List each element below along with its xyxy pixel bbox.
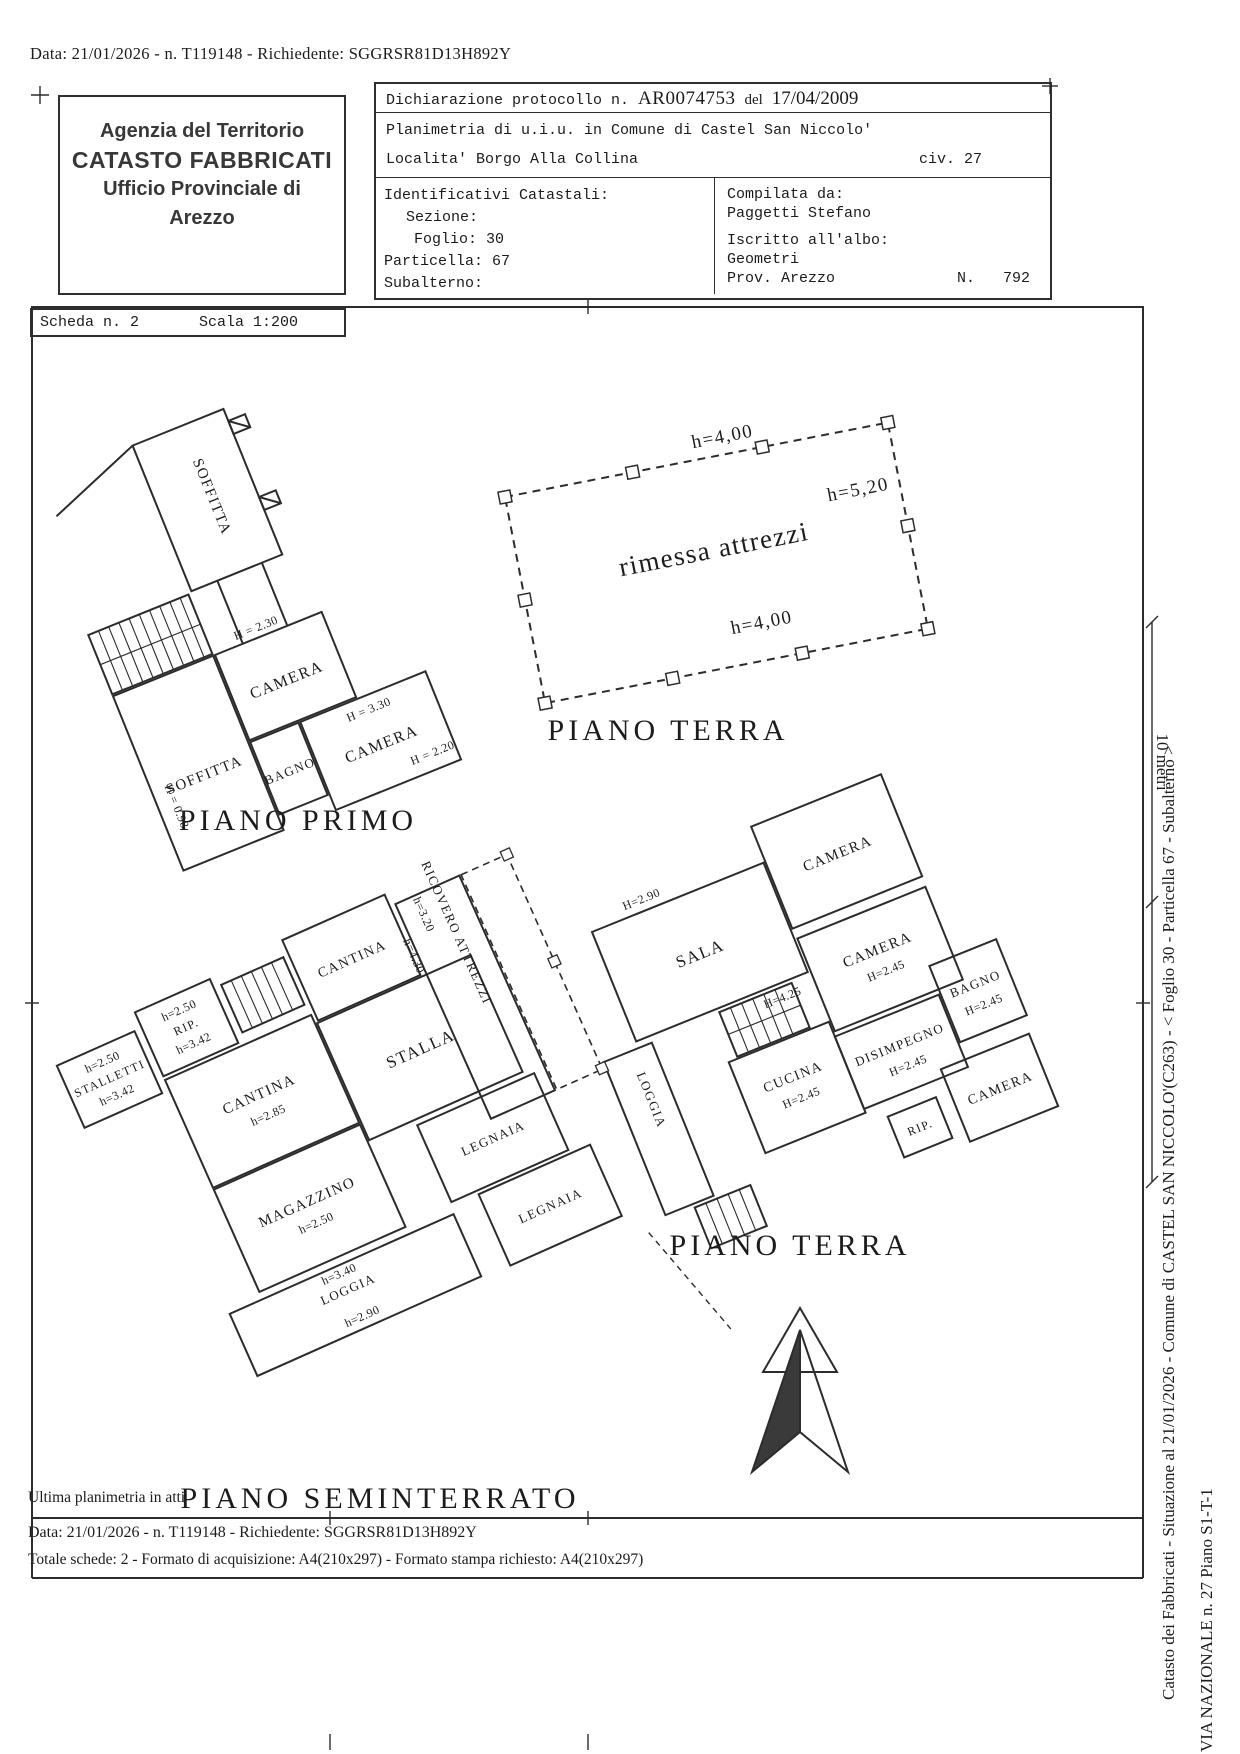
seminterrato-title: PIANO SEMINTERRATO (181, 1482, 580, 1515)
seminterrato-plan: h=2.50 STALLETTI h=3.42 h=2.50 RIP. h=3.… (42, 828, 665, 1401)
room-label-camera-top: CAMERA (801, 833, 875, 875)
room-loggia (604, 1043, 714, 1215)
room-label-camera1: CAMERA (248, 658, 326, 703)
stair-treads (641, 983, 872, 1244)
canopy-posts (500, 848, 608, 1075)
room-label-legnaia-1: LEGNAIA (459, 1117, 527, 1158)
room-label-legnaia-2: LEGNAIA (516, 1185, 584, 1226)
north-arrow (752, 1308, 848, 1472)
room-camera-mid (797, 887, 962, 1031)
height-label: h=4,00 (690, 421, 755, 454)
rimessa-attrezzi-plan: rimessa attrezzi h=4,00 h=5,20 h=4,00 (494, 394, 935, 710)
margin-address-text: VIA NAZIONALE n. 27 Piano S1-T-1 (1197, 1488, 1216, 1752)
room-label-camera-bottom: CAMERA (966, 1069, 1036, 1109)
piano-primo-plan: SOFFITTA H = 2.30 CAMERA H = 3.30 CAMERA… (29, 376, 461, 872)
room-label-cantina-up: CANTINA (316, 938, 389, 982)
height-label: H=2.45 (887, 1051, 929, 1079)
room-label-sala: SALA (673, 935, 727, 971)
piano-terra-title: PIANO TERRA (670, 1229, 911, 1262)
height-label: H=2.90 (620, 885, 662, 913)
stair-treads (231, 963, 292, 1028)
room-label-rip: RIP. (905, 1116, 935, 1139)
rimessa-floor-title: PIANO TERRA (548, 714, 789, 747)
height-label: H=2.45 (963, 991, 1005, 1019)
rimessa-label: rimessa attrezzi (616, 516, 811, 582)
staircase (221, 957, 304, 1032)
room-label-loggia: LOGGIA (634, 1070, 670, 1130)
plan-border (32, 307, 1143, 1518)
height-label: h=5,20 (825, 474, 890, 507)
room-cucina (729, 1022, 866, 1153)
room-loggia (230, 1214, 481, 1376)
cadastral-plan-page: Data: 21/01/2026 - n. T119148 - Richiede… (0, 0, 1240, 1754)
margin-situation-text: Catasto dei Fabbricati - Situazione al 2… (1159, 745, 1178, 1700)
sheet-frame (32, 307, 1143, 1578)
room-label-soffitta-top: SOFFITTA (189, 456, 234, 537)
height-label: h=4,00 (729, 607, 794, 640)
room-label-bagno: BAGNO (262, 754, 317, 788)
height-label: h=4.30 (400, 936, 428, 975)
piano-primo-title: PIANO PRIMO (179, 804, 417, 837)
height-label: h=3.20 (410, 895, 438, 934)
height-label: h=2.90 (342, 1302, 381, 1330)
room-label-camera2: CAMERA (343, 722, 421, 767)
plan-drawing-layer: 10 metri Catasto dei Fabbricati - Situaz… (0, 0, 1240, 1754)
room-label-stalla: STALLA (383, 1025, 457, 1072)
